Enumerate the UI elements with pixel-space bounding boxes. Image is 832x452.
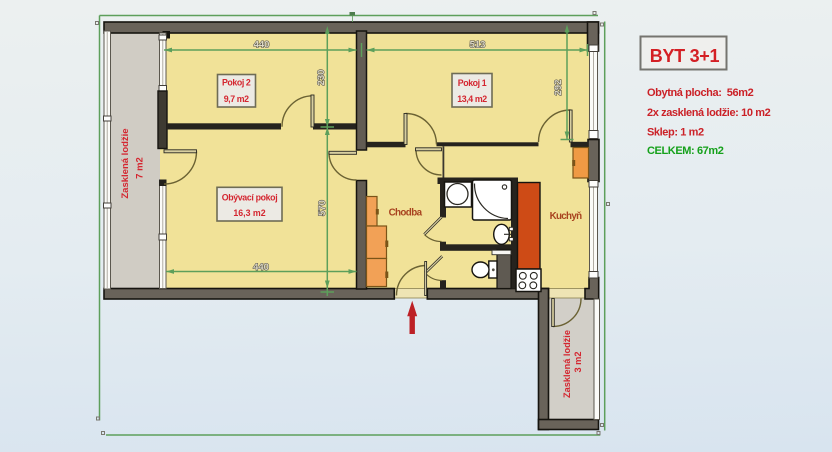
svg-text:13,4 m2: 13,4 m2 xyxy=(457,94,487,104)
svg-text:Obytná plocha: 56m2: Obytná plocha: 56m2 xyxy=(647,87,754,99)
svg-text:Pokoj 2: Pokoj 2 xyxy=(222,78,251,88)
svg-text:Sklep: 1 m2: Sklep: 1 m2 xyxy=(647,127,704,139)
svg-text:230: 230 xyxy=(316,70,327,86)
svg-text:2x zasklená lodžie: 10 m2: 2x zasklená lodžie: 10 m2 xyxy=(647,107,771,119)
svg-text:Zasklená lodžie: Zasklená lodžie xyxy=(562,330,572,398)
svg-text:570: 570 xyxy=(317,200,328,216)
svg-text:7 m2: 7 m2 xyxy=(135,157,146,179)
svg-text:292: 292 xyxy=(553,80,564,96)
svg-text:CELKEM: 67m2: CELKEM: 67m2 xyxy=(647,145,724,157)
svg-text:Pokoj 1: Pokoj 1 xyxy=(458,78,487,88)
svg-text:3 m2: 3 m2 xyxy=(573,352,583,373)
svg-text:9,7 m2: 9,7 m2 xyxy=(224,94,249,104)
svg-text:513: 513 xyxy=(470,40,486,51)
svg-text:440: 440 xyxy=(253,262,269,273)
svg-text:Zasklená lodžie: Zasklená lodžie xyxy=(120,128,131,198)
svg-text:Chodba: Chodba xyxy=(389,208,423,219)
svg-text:440: 440 xyxy=(254,40,270,51)
svg-text:BYT 3+1: BYT 3+1 xyxy=(650,46,720,66)
svg-text:Kuchyň: Kuchyň xyxy=(550,211,582,222)
svg-text:Obývací pokoj: Obývací pokoj xyxy=(222,192,278,202)
svg-text:16,3 m2: 16,3 m2 xyxy=(233,208,265,218)
